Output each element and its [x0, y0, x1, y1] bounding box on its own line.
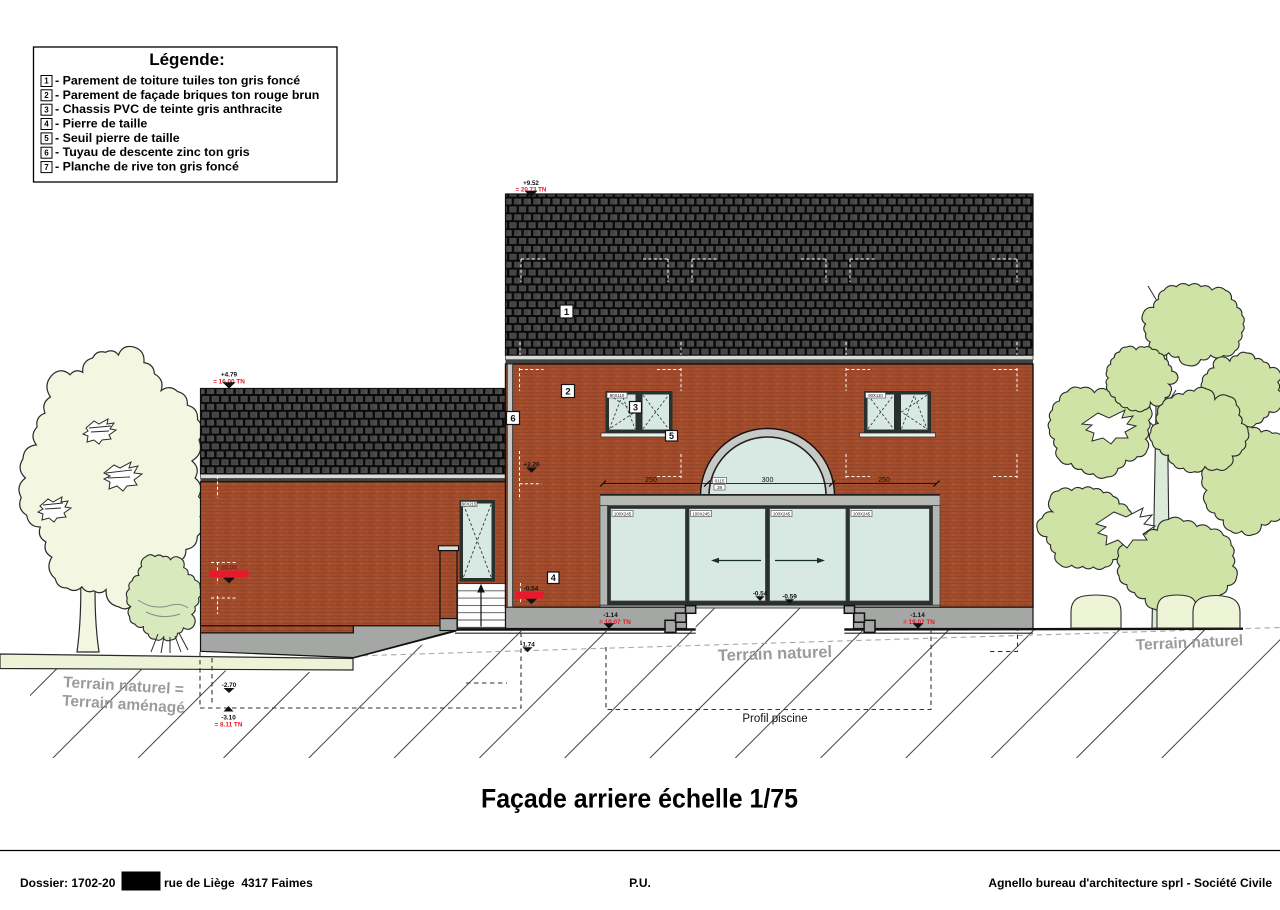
svg-text:1: 1	[564, 307, 570, 318]
svg-text:Façade arriere échelle 1/75: Façade arriere échelle 1/75	[481, 784, 798, 814]
svg-text:100X245: 100X245	[853, 511, 871, 516]
svg-text:- Planche de rive ton gris fon: - Planche de rive ton gris foncé	[55, 160, 239, 174]
svg-text:90X110: 90X110	[868, 393, 883, 398]
svg-text:100X245: 100X245	[773, 511, 791, 516]
svg-text:±0.00: ±0.00	[221, 565, 237, 572]
svg-text:-3.10: -3.10	[221, 715, 236, 722]
svg-text:= 19.07 TN: = 19.07 TN	[599, 619, 631, 626]
svg-text:38: 38	[717, 485, 723, 490]
svg-text:4: 4	[551, 573, 556, 583]
svg-text:6: 6	[510, 413, 515, 424]
svg-text:90X215: 90X215	[462, 502, 477, 507]
svg-text:5: 5	[669, 431, 674, 441]
svg-text:rue de Liège 4317 Faimes: rue de Liège 4317 Faimes	[164, 876, 313, 890]
svg-text:250: 250	[878, 477, 890, 484]
svg-text:2: 2	[565, 386, 570, 397]
svg-text:1: 1	[44, 77, 49, 86]
svg-text:-0.59: -0.59	[782, 593, 797, 600]
svg-text:Dossier: 1702-20: Dossier: 1702-20	[20, 876, 116, 890]
svg-text:= 8.11 TN: = 8.11 TN	[215, 722, 243, 729]
svg-text:-0.54: -0.54	[753, 590, 768, 597]
svg-text:- Parement de façade briques t: - Parement de façade briques ton rouge b…	[55, 88, 319, 102]
svg-text:Légende:: Légende:	[149, 50, 225, 69]
svg-text:- Parement de toiture tuiles t: - Parement de toiture tuiles ton gris fo…	[55, 74, 300, 88]
svg-text:- Tuyau de descente zinc ton g: - Tuyau de descente zinc ton gris	[55, 145, 250, 159]
svg-text:5: 5	[44, 134, 49, 143]
svg-text:Profil piscine: Profil piscine	[742, 713, 807, 725]
svg-text:+2.20: +2.20	[523, 462, 540, 469]
svg-text:7: 7	[44, 163, 49, 172]
svg-text:100X245: 100X245	[692, 511, 710, 516]
svg-text:100X245: 100X245	[614, 511, 632, 516]
svg-text:Agnello bureau d'architecture: Agnello bureau d'architecture sprl - Soc…	[988, 876, 1272, 890]
svg-text:-2.70: -2.70	[222, 682, 237, 689]
svg-text:4: 4	[44, 120, 49, 129]
svg-text:3: 3	[44, 105, 49, 114]
svg-text:0115: 0115	[715, 478, 725, 483]
svg-text:- Seuil pierre de taille: - Seuil pierre de taille	[55, 131, 180, 145]
svg-text:-1.74: -1.74	[520, 641, 535, 648]
svg-text:- Chassis PVC de teinte gris a: - Chassis PVC de teinte gris anthracite	[55, 102, 282, 116]
svg-text:- Pierre de taille: - Pierre de taille	[55, 117, 147, 131]
svg-text:90X110: 90X110	[610, 393, 625, 398]
svg-text:3: 3	[633, 402, 638, 412]
svg-text:-0.54: -0.54	[524, 585, 539, 592]
svg-text:6: 6	[44, 148, 49, 157]
svg-text:250: 250	[645, 477, 657, 484]
svg-text:+4.79: +4.79	[221, 371, 238, 378]
svg-text:P.U.: P.U.	[629, 876, 651, 890]
svg-text:2: 2	[44, 91, 49, 100]
svg-text:300: 300	[762, 477, 774, 484]
